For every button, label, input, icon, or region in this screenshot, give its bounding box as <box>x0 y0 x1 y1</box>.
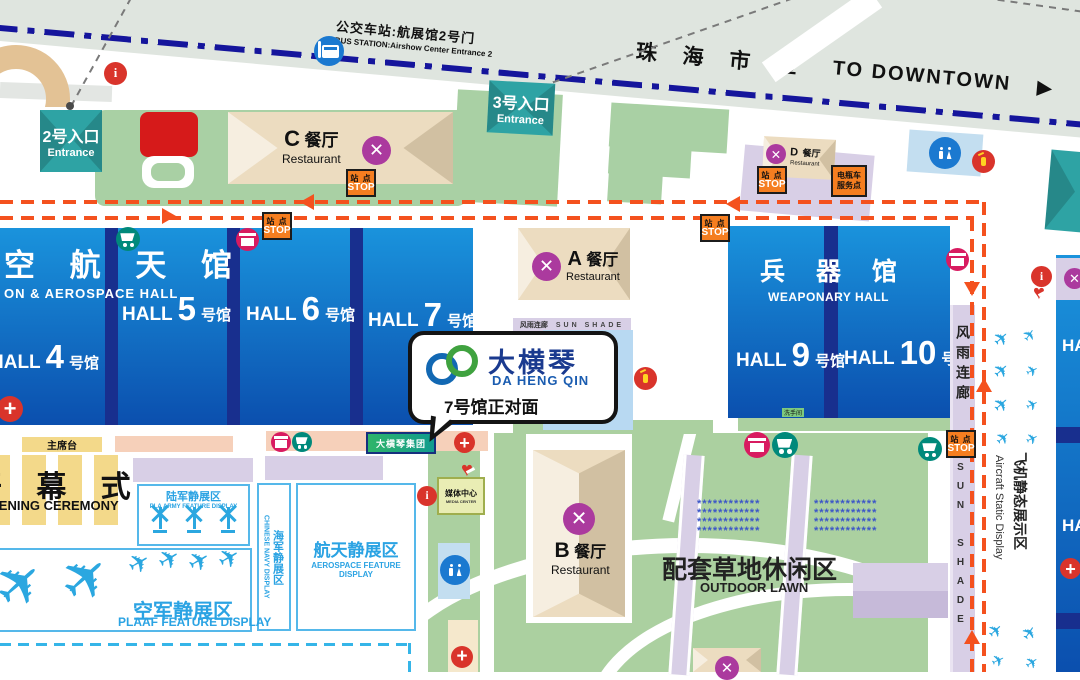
route-arrow-up2-icon <box>964 630 980 644</box>
restaurant-icon-east <box>1064 268 1080 289</box>
east-hall-label: HALL <box>1062 336 1080 356</box>
info-icon <box>104 62 127 85</box>
route-arrow-left2-icon <box>726 196 740 212</box>
first-aid-icon <box>451 646 473 668</box>
east-hall-block <box>1056 255 1080 672</box>
stage-label: 主席台 <box>47 437 77 452</box>
static-plane-icon <box>1023 396 1041 415</box>
info-icon <box>417 486 437 506</box>
walk-route-blue <box>0 643 410 646</box>
restaurant-d-letter: D <box>790 146 799 158</box>
entrance-2-cn: 2号入口 <box>43 123 100 147</box>
entrance-3: 3号入口 Entrance <box>487 80 556 135</box>
hall-suffix: 号馆 <box>201 304 231 325</box>
static-plane-icon <box>990 393 1015 418</box>
walk-route-blue-corner <box>408 643 411 672</box>
man-icon <box>939 147 944 159</box>
hall-suffix: 号馆 <box>815 350 845 371</box>
stop-en: STOP <box>701 228 728 238</box>
dhq-logo-green-ring <box>446 345 478 377</box>
entrance-2: 2号入口 Entrance <box>40 110 102 172</box>
walkway-strip <box>115 436 233 452</box>
lawn-seating-pattern: ****************************************… <box>814 500 892 536</box>
cart-glyph <box>120 233 134 241</box>
route-arrow-right-icon <box>162 208 176 224</box>
gift-shop-icon <box>236 228 259 251</box>
corridor-east-en: SUN SHADE <box>955 462 966 633</box>
entrance2-dot <box>66 102 74 110</box>
hall-word: HALL <box>736 350 787 372</box>
hall-word: HALL <box>368 310 419 332</box>
hall-word: HALL <box>0 352 41 374</box>
stop-marker: 站 点 STOP <box>946 430 976 458</box>
restaurant-a-icon <box>532 252 561 281</box>
static-plane-icon <box>992 427 1014 449</box>
corridor-en: SUN SHADE <box>556 322 624 329</box>
static-plane-icon <box>1023 430 1041 449</box>
first-aid-icon <box>1060 558 1080 579</box>
hall-9-number: 9 <box>792 340 810 370</box>
hall-6-label: HALL 6 号馆 <box>246 294 355 326</box>
hall-6-number: 6 <box>302 294 320 324</box>
outdoor-lawn-en: OUTDOOR LAWN <box>700 580 808 595</box>
hall-word: HALL <box>844 348 895 370</box>
static-plane-icon <box>984 619 1007 642</box>
stop-marker: 站 点 STOP <box>346 169 376 197</box>
restaurant-south-icon <box>715 656 739 680</box>
static-plane-icon <box>989 652 1008 672</box>
restaurant-b-letter: B <box>555 539 570 562</box>
restaurant-en: Restaurant <box>282 152 341 166</box>
hall-7-label: HALL 7 号馆 <box>368 300 477 332</box>
bus-pole-icon <box>318 41 321 58</box>
static-plane-icon <box>1023 654 1043 675</box>
restaurant-d-icon <box>766 144 786 164</box>
park-step-3 <box>607 104 667 204</box>
fire-extinguisher-icon <box>972 150 995 173</box>
navy-display-en: CHINESE NAVY DISPLAY <box>263 515 270 599</box>
arch-area <box>0 45 78 107</box>
red-building <box>140 112 198 157</box>
pavilion <box>853 563 948 618</box>
bus-station-icon <box>314 36 344 66</box>
route-arrow-up-icon <box>976 378 992 392</box>
gift-shop-icon <box>946 248 969 271</box>
dhq-callout: 大横琴 DA HENG QIN 7号馆正对面 <box>408 331 618 424</box>
cart-service-point: 电瓶车 服务点 <box>831 165 867 197</box>
static-plane-icon <box>1023 362 1041 381</box>
shop-icon <box>772 432 798 458</box>
restaurant-c-letter: C <box>284 126 300 151</box>
hall-suffix: 号馆 <box>447 310 477 331</box>
washroom-label: 洗手间 <box>782 408 804 417</box>
stop-marker: 站 点 STOP <box>700 214 730 242</box>
shade-roof <box>133 458 253 482</box>
shop-icon <box>116 227 140 251</box>
restaurant-cn: 餐厅 <box>586 252 618 269</box>
restaurant-b-label: B 餐厅 Restaurant <box>551 538 610 577</box>
dhq-name-en: DA HENG QIN <box>492 373 589 388</box>
stop-marker: 站 点 STOP <box>262 212 292 240</box>
shuttle-route-top-outer <box>0 200 986 204</box>
aerospace-display-box: 航天静展区 AEROSPACE FEATURE DISPLAY <box>296 483 416 631</box>
arch-ring <box>0 45 70 107</box>
hall-4-label: HALL 4 号馆 <box>0 342 99 374</box>
restaurant-cn: 餐厅 <box>305 131 339 150</box>
media-center-cn: 媒体中心 <box>445 488 477 499</box>
woman-icon <box>457 564 462 576</box>
first-aid-heart-icon <box>461 461 473 479</box>
first-aid-heart-icon <box>1033 284 1045 302</box>
entrance-3-cn: 3号入口 <box>492 89 550 116</box>
hall-word: HALL <box>246 304 297 326</box>
shop-icon <box>918 437 942 461</box>
gift-shop-icon <box>744 432 770 458</box>
aerospace-display-en: AEROSPACE FEATURE DISPLAY <box>298 561 414 579</box>
stop-en: STOP <box>758 180 785 190</box>
route-arrow-down-icon <box>964 282 980 296</box>
cart-service-line1: 电瓶车 <box>837 171 861 181</box>
fire-extinguisher-icon <box>634 367 657 390</box>
shuttle-route-top-inner <box>0 216 974 220</box>
restaurant-d-label: D 餐厅 Restaurant <box>789 142 821 168</box>
restaurant-c-label: C 餐厅 Restaurant <box>282 126 341 166</box>
static-plane-icon <box>1018 622 1041 645</box>
static-plane-icon <box>990 359 1015 384</box>
static-plane-icon <box>1020 326 1041 346</box>
hall-5-label: HALL 5 号馆 <box>122 294 231 326</box>
downtown-arrow-icon: ▶ <box>1036 74 1054 100</box>
aircraft-display-en: Aircraft Static Display <box>993 455 1005 560</box>
hall-word: HALL <box>122 304 173 326</box>
stop-en: STOP <box>263 226 290 236</box>
helicopter-icon <box>148 505 172 537</box>
stop-en: STOP <box>947 444 974 454</box>
static-plane-icon <box>990 327 1015 352</box>
aerospace-display-cn: 航天静展区 <box>314 536 399 561</box>
media-center-en: MEDIA CENTER <box>446 499 476 504</box>
corridor-east-cn: 风雨连廊 <box>953 325 973 405</box>
army-display-cn: 陆军静展区 <box>139 488 248 504</box>
restaurant-en: Restaurant <box>566 271 620 283</box>
helicopter-icon <box>182 505 206 537</box>
east-hall-label-2: HALL <box>1062 516 1080 536</box>
restaurant-en: Restaurant <box>551 563 610 577</box>
cart-service-line2: 服务点 <box>837 181 861 191</box>
weaponry-hall-en: WEAPONARY HALL <box>768 290 889 304</box>
restaurant-cn: 餐厅 <box>802 148 821 159</box>
first-aid-icon <box>454 432 475 453</box>
hall-5-number: 5 <box>178 294 196 324</box>
dhq-group-label: 大横琴集团 <box>366 432 436 454</box>
media-center: 媒体中心 MEDIA CENTER <box>437 477 485 515</box>
route-arrow-left-icon <box>300 194 314 210</box>
hall-suffix: 号馆 <box>69 352 99 373</box>
toilet-icon <box>440 555 470 585</box>
restaurant-c-icon <box>362 136 391 165</box>
airforce-display-en: PLAAF FEATURE DISPLAY <box>118 615 271 629</box>
stop-marker: 站 点 STOP <box>757 166 787 194</box>
airshow-map: { "road": {"city_cn": "珠 海 市 区", "city_e… <box>0 0 1080 672</box>
restaurant-b-icon <box>563 503 595 535</box>
toilet-icon <box>929 137 961 169</box>
navy-display-cn: 海军静展区 <box>270 530 286 585</box>
stop-en: STOP <box>347 183 374 193</box>
restaurant-a-label: A 餐厅 Restaurant <box>566 246 620 283</box>
dhq-note: 7号馆正对面 <box>444 393 538 418</box>
woman-icon <box>947 147 952 159</box>
stage-strip: 主席台 <box>22 437 102 452</box>
shuttle-route-right-outer <box>982 202 986 672</box>
hall-9-label: HALL 9 号馆 <box>736 340 845 372</box>
hall-divider <box>350 228 363 425</box>
pavilion-shade <box>853 591 948 618</box>
hall-suffix: 号馆 <box>325 304 355 325</box>
shade-roof <box>265 456 383 480</box>
aircraft-display-cn: 飞机静态展示区 <box>1010 452 1030 550</box>
weaponry-hall-cn: 兵 器 馆 <box>760 252 909 288</box>
navy-display-box: CHINESE NAVY DISPLAY 海军静展区 <box>257 483 291 631</box>
ceremony-en: OPENING CEREMONY <box>0 498 119 513</box>
park-path-inner <box>151 163 185 181</box>
hall-7-number: 7 <box>424 300 442 330</box>
corridor-cn: 风雨连廊 <box>520 320 548 330</box>
restaurant-a-letter: A <box>567 248 581 270</box>
bus-body-icon <box>322 45 339 58</box>
hall-4-number: 4 <box>46 342 64 372</box>
restaurant-cn: 餐厅 <box>574 544 606 561</box>
helicopter-icon <box>216 505 240 537</box>
gift-shop-icon <box>271 432 291 452</box>
hall-10-number: 10 <box>900 338 937 368</box>
hall-divider <box>1056 613 1080 629</box>
entrance-2-en: Entrance <box>47 147 94 159</box>
lawn-seating-pattern: ****************************************… <box>697 500 781 536</box>
lawn-strip <box>738 418 952 431</box>
man-icon <box>449 564 454 576</box>
shop-icon <box>292 432 312 452</box>
hall-divider <box>1056 427 1080 443</box>
entrance-east-partial <box>1045 150 1080 235</box>
entrance-3-en: Entrance <box>497 113 545 127</box>
